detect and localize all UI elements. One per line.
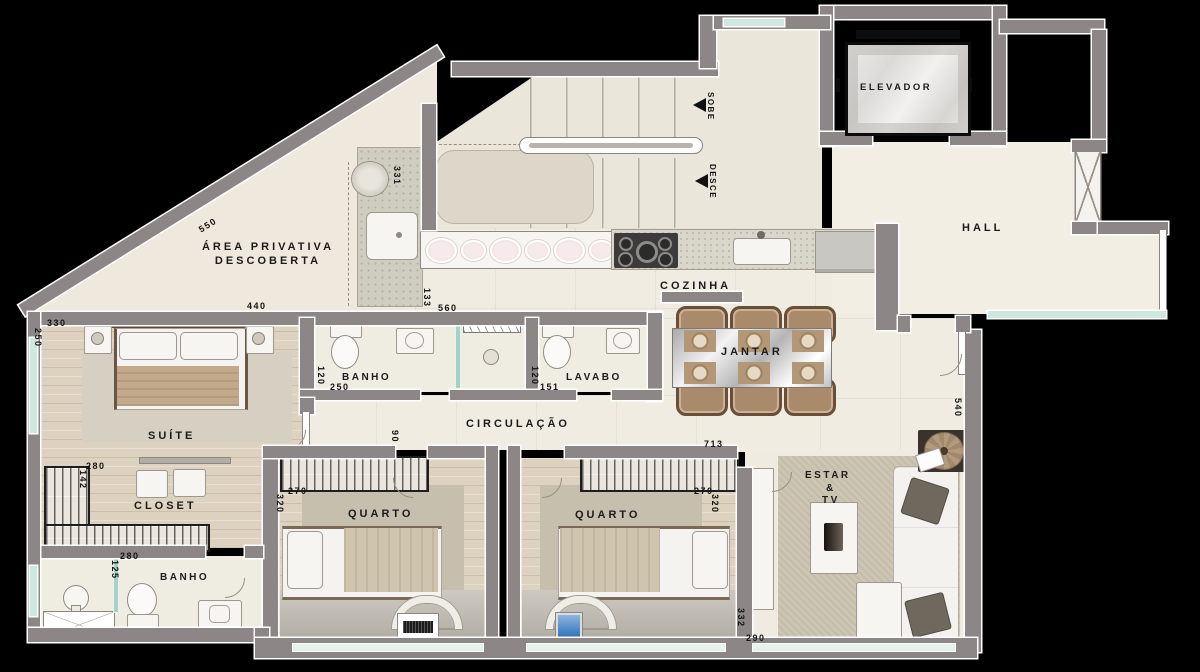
- wall: [876, 224, 898, 330]
- wall: [508, 446, 520, 646]
- dim-250-banho: 250: [330, 382, 350, 392]
- window: [752, 643, 956, 652]
- shaft-icon: [1076, 152, 1100, 222]
- sobe-label: SOBE: [706, 92, 715, 121]
- dim-120-banho: 120: [316, 366, 326, 386]
- kitchen-counter: [420, 231, 620, 269]
- dim-332: 332: [736, 608, 746, 628]
- wall: [245, 546, 263, 558]
- plant-center: [940, 447, 948, 455]
- suite-blanket: [117, 366, 239, 406]
- dim-331: 331: [392, 166, 402, 186]
- placemat: [738, 362, 770, 384]
- room-label-quarto-1: QUARTO: [348, 508, 413, 520]
- toilet-bowl-icon: [332, 336, 358, 368]
- room-label-closet: CLOSET: [134, 500, 197, 512]
- room-label-area-privativa-1: ÁREA PRIVATIVA: [196, 241, 340, 253]
- burner: [658, 252, 673, 267]
- placemat: [684, 330, 716, 352]
- window: [724, 19, 784, 26]
- counter-oval: [589, 240, 614, 261]
- lavabo-vanity: [606, 328, 640, 354]
- placemat: [792, 330, 824, 352]
- elevator-rail-icon: [836, 78, 840, 92]
- room-label-cozinha: COZINHA: [660, 280, 731, 292]
- placemat: [684, 362, 716, 384]
- dim-320-q2: 320: [710, 494, 720, 514]
- elevator-rail-icon: [968, 78, 972, 92]
- room-label-quarto-2: QUARTO: [575, 509, 640, 521]
- suite-stool: [173, 469, 206, 497]
- stairs-upper-flight: [530, 74, 692, 140]
- burner: [619, 237, 633, 251]
- quarto1-blanket: [344, 528, 438, 592]
- quarto2-wardrobe-icon: [580, 456, 739, 492]
- stove-icon: [614, 233, 678, 268]
- dim-320-q1: 320: [275, 494, 285, 514]
- room-label-area-privativa-2: DESCOBERTA: [196, 255, 340, 267]
- toilet-tank: [127, 614, 159, 628]
- dim-280-closet: 280: [86, 461, 106, 471]
- dim-540: 540: [953, 398, 963, 418]
- dim-151: 151: [540, 382, 560, 392]
- wall: [1098, 222, 1168, 234]
- terrace-basin: [352, 162, 388, 196]
- entry-door-leaf: [959, 332, 965, 374]
- hall-edge-glass: [988, 311, 1166, 318]
- toilet-bowl-icon: [544, 336, 570, 368]
- keyboard-keys: [403, 621, 433, 633]
- suite-pillow: [119, 332, 177, 360]
- dim-330: 330: [47, 318, 67, 328]
- wall: [820, 6, 1006, 19]
- burner: [658, 237, 672, 251]
- wall: [300, 318, 314, 400]
- quarto2-blanket: [560, 528, 660, 592]
- wall: [1000, 20, 1104, 33]
- stairs-cut-line: [434, 144, 526, 145]
- wall: [428, 446, 488, 458]
- terrace-sink: [366, 212, 418, 260]
- quarto2-pillow: [692, 531, 728, 589]
- wall: [486, 446, 498, 646]
- sink-bowl-icon: [210, 606, 229, 622]
- window: [30, 566, 37, 616]
- room-label-hall: HALL: [962, 222, 1003, 234]
- counter-oval: [525, 240, 550, 261]
- banho-vanity: [396, 328, 434, 354]
- floor-plan: SOBE DESCE: [0, 0, 1200, 672]
- suite-lamp-icon: [253, 333, 264, 344]
- wall: [263, 446, 395, 458]
- elevator-counterweight-icon: [856, 30, 960, 39]
- desce-arrow-icon: [688, 174, 708, 188]
- wall: [898, 316, 910, 332]
- sobe-arrow-icon: [686, 98, 706, 112]
- kitchen-sink: [733, 238, 791, 265]
- banho2-vanity: [198, 600, 242, 628]
- counter-oval: [554, 238, 585, 263]
- wall: [612, 390, 662, 400]
- wall-counter-stub: [662, 292, 742, 302]
- quarto1-pillow: [287, 531, 323, 589]
- wall: [28, 628, 262, 642]
- room-label-elevador: ELEVADOR: [860, 82, 932, 93]
- dim-280-banho2: 280: [120, 551, 140, 561]
- room-label-lavabo: LAVABO: [566, 372, 622, 383]
- wall: [1072, 140, 1106, 152]
- room-label-estar-1: ESTAR: [805, 470, 851, 481]
- dim-250-suite: 250: [33, 328, 43, 348]
- desce-label: DESCE: [708, 164, 717, 199]
- stairs-handrail-bar: [529, 143, 693, 148]
- suite-door-leaf: [303, 412, 309, 446]
- wall: [648, 313, 662, 401]
- suite-dresser: [140, 458, 230, 463]
- counter-oval: [426, 238, 457, 263]
- dim-713: 713: [704, 439, 724, 449]
- refrigerator: [816, 232, 876, 272]
- suite-pillow: [180, 332, 238, 360]
- room-label-estar-3: TV: [822, 495, 840, 506]
- room-label-estar-2: &: [826, 483, 836, 494]
- dim-142: 142: [78, 470, 88, 490]
- dim-560: 560: [438, 303, 458, 313]
- sink-bowl-icon: [406, 333, 423, 348]
- wall: [452, 62, 718, 76]
- wall: [965, 330, 981, 652]
- wall: [28, 312, 662, 325]
- room-label-jantar: JANTAR: [721, 346, 783, 358]
- tv-stand: [810, 502, 858, 574]
- shower-head-icon: [484, 350, 498, 364]
- projection-line: [348, 162, 349, 306]
- burner: [636, 241, 658, 263]
- dim-133: 133: [422, 288, 432, 308]
- window: [30, 338, 37, 433]
- shower-screen-glass: [456, 324, 460, 388]
- sofa-ottoman: [856, 582, 902, 642]
- sink-bowl-icon: [614, 333, 631, 348]
- placemat: [792, 362, 824, 384]
- counter-oval: [461, 240, 486, 261]
- door-jamb: [956, 316, 970, 332]
- room-label-suite: SUÍTE: [148, 430, 195, 442]
- window: [292, 643, 484, 652]
- wall: [1092, 30, 1106, 142]
- counter-oval: [490, 238, 521, 263]
- toilet-bowl-icon: [128, 584, 156, 616]
- room-label-banho-social: BANHO: [160, 572, 209, 583]
- wall: [263, 446, 278, 648]
- dim-90: 90: [390, 430, 400, 443]
- dim-120-lavabo: 120: [530, 366, 540, 386]
- room-label-circulacao: CIRCULAÇÃO: [466, 418, 570, 430]
- dim-270-q1: 270: [288, 486, 308, 496]
- wall: [300, 390, 420, 400]
- dim-290: 290: [746, 633, 766, 643]
- window: [526, 643, 726, 652]
- quarto1-keyboard-icon: [398, 614, 438, 638]
- burner: [618, 252, 633, 267]
- terrace-sink-drain: [396, 232, 402, 238]
- suite-stool: [136, 470, 168, 498]
- wall: [422, 104, 436, 230]
- media-device-icon: [824, 523, 843, 551]
- stairs-void: [436, 150, 594, 224]
- dim-440: 440: [247, 301, 267, 311]
- parapet: [1160, 230, 1166, 314]
- suite-lamp-icon: [92, 333, 103, 344]
- quarto2-monitor-icon: [558, 615, 580, 638]
- wall: [28, 546, 205, 558]
- dim-125: 125: [110, 560, 120, 580]
- kitchen-faucet-icon: [757, 231, 765, 239]
